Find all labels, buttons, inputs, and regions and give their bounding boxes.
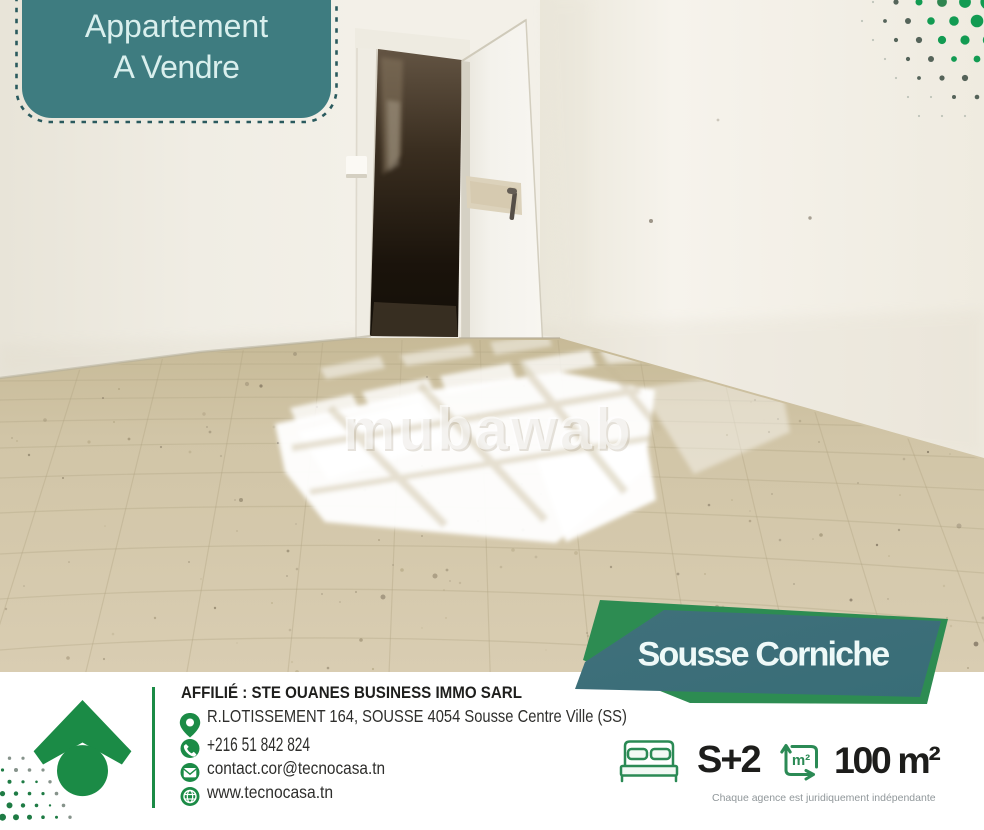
svg-text:m²: m² xyxy=(792,752,810,769)
svg-text:mubawab: mubawab xyxy=(342,395,633,462)
svg-text:Sousse Corniche: Sousse Corniche xyxy=(638,636,890,674)
